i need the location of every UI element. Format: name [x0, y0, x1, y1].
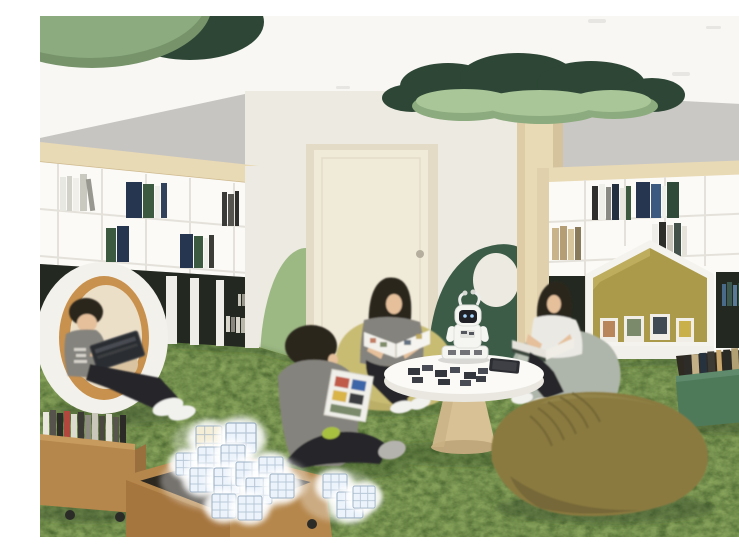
library-rendering [40, 16, 739, 537]
robot-face-screen [459, 310, 477, 323]
crate-left-front [40, 440, 135, 513]
cabinet-book-spines [722, 282, 739, 306]
shelf-left-end-panel [245, 166, 259, 348]
tree-column-shade-left [517, 86, 525, 362]
caster-wheel [65, 510, 75, 520]
girl-face [547, 295, 561, 313]
door-handle [416, 250, 424, 258]
woman-face [386, 294, 402, 314]
boy-activity-board [324, 369, 373, 422]
scene-canvas [40, 16, 739, 537]
beanbag-olive [491, 392, 708, 516]
pod-reader-face [77, 314, 97, 332]
robot-eye [463, 314, 467, 318]
robot-eye [470, 314, 474, 318]
